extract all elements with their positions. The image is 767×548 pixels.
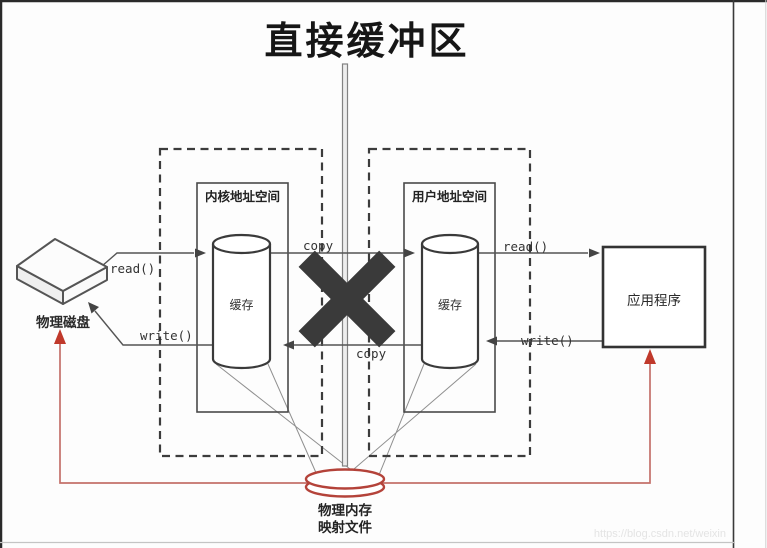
mapping-line-user-left — [379, 364, 424, 475]
copy-top-label: copy — [303, 238, 333, 253]
mapped-file-ellipse-top — [306, 470, 384, 489]
mapping-line-kernel-left — [216, 364, 350, 469]
copy-arrowhead-into-user — [404, 249, 415, 258]
read-arrowhead-into-app — [589, 249, 600, 258]
read-left-label: read() — [110, 261, 155, 276]
center-divider-line — [343, 64, 348, 466]
application-label: 应用程序 — [603, 289, 705, 309]
user-cylinder-top — [422, 235, 478, 253]
mapping-line-kernel-right — [268, 364, 317, 475]
mapping-line-user-right — [354, 364, 476, 469]
read-right-label: read() — [503, 239, 548, 254]
write-left-label: write() — [140, 328, 193, 343]
kernel-space-label: 内核地址空间 — [197, 186, 288, 205]
kernel-cylinder-top — [213, 235, 270, 253]
read-arrowhead-into-kernel — [195, 249, 206, 258]
user-cache-label: 缓存 — [422, 296, 478, 313]
red-mapping-line — [60, 338, 650, 483]
physical-disk-shape — [17, 239, 107, 304]
direct-buffer-diagram: 直接缓冲区 内核地址空间 用户地址空间 缓存 缓存 物理磁盘 应用程序 read… — [0, 0, 767, 548]
physical-disk-label: 物理磁盘 — [10, 311, 116, 331]
copy-bottom-label: copy — [356, 346, 386, 361]
mapped-file-label-line2: 映射文件 — [285, 516, 405, 536]
user-space-label: 用户地址空间 — [404, 186, 495, 205]
memory-mapped-file-ellipse — [306, 470, 384, 497]
write-right-label: write() — [521, 333, 574, 348]
kernel-cache-label: 缓存 — [213, 296, 270, 313]
page-title: 直接缓冲区 — [0, 10, 734, 65]
watermark-text: https://blog.csdn.net/weixin — [470, 528, 726, 540]
red-arrowhead-to-app — [644, 349, 656, 364]
write-arrowhead-into-user — [486, 337, 497, 346]
red-arrowhead-to-disk — [54, 329, 66, 344]
